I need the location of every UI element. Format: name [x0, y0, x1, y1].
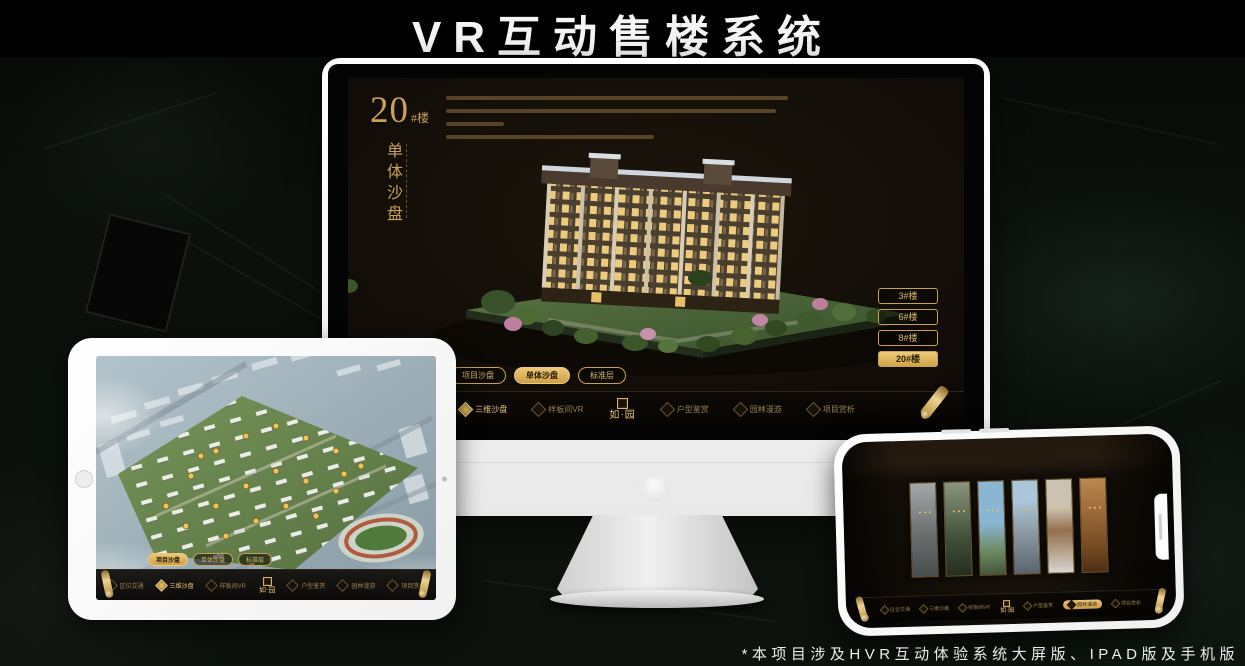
- block-number: 20: [370, 90, 409, 131]
- seal-icon: [263, 577, 272, 586]
- phone-notch: [1154, 494, 1169, 560]
- bottom-nav-bar: 区位交通 三维沙盘 样板间VR 如·园 户型鉴赏 园林漫游 项目赏析: [96, 569, 436, 600]
- diamond-icon: [286, 579, 299, 592]
- nav-item-project-gallery[interactable]: 项目赏析: [808, 404, 855, 415]
- scene-gallery: [909, 477, 1109, 577]
- nav-item-3d-sandbox[interactable]: 三维沙盘: [920, 605, 949, 613]
- scene-panel-autumn[interactable]: [1045, 478, 1075, 574]
- nav-item-label: 园林漫游: [1077, 601, 1097, 609]
- scene-panel-interior[interactable]: [1079, 477, 1109, 573]
- nav-item-model-room-vr[interactable]: 样板间VR: [959, 604, 990, 612]
- tab-standard-floor[interactable]: 标准层: [238, 553, 272, 566]
- nav-item-label: 样板间VR: [548, 404, 583, 415]
- monitor-stand-base: [550, 590, 764, 608]
- seal-icon: [1003, 599, 1010, 606]
- diamond-icon: [531, 401, 547, 417]
- nav-item-project-gallery[interactable]: 项目赏析: [1112, 599, 1141, 607]
- nav-item-label: 区位交通: [120, 581, 144, 590]
- section-title: 单体沙盘: [380, 142, 404, 226]
- panel-label-dots: [1059, 507, 1061, 509]
- scene-panel-exterior[interactable]: [977, 480, 1007, 576]
- tablet-device: 项目沙盘 单体沙盘 标准层 区位交通 三维沙盘 样板间VR 如·园 户型鉴赏 园…: [68, 338, 456, 620]
- floor-button-column: 3#楼 6#楼 8#楼 20#楼: [878, 288, 938, 367]
- nav-item-location[interactable]: 区位交通: [881, 606, 910, 614]
- diamond-icon: [659, 401, 675, 417]
- brand-logo: 如·园: [609, 398, 635, 421]
- brand-logo-text: 如·园: [1000, 607, 1014, 613]
- nav-item-label: 样板间VR: [968, 604, 990, 612]
- floor-button-6[interactable]: 6#楼: [878, 309, 938, 325]
- nav-item-garden-roam[interactable]: 园林漫游: [338, 581, 375, 590]
- diamond-icon: [958, 603, 968, 613]
- nav-item-model-room-vr[interactable]: 样板间VR: [207, 581, 246, 590]
- nav-item-3d-sandbox[interactable]: 三维沙盘: [157, 581, 194, 590]
- footnote-text: *本项目涉及HVR互动体验系统大屏版、IPAD版及手机版: [742, 643, 1239, 664]
- seal-icon: [617, 398, 628, 409]
- diamond-icon: [336, 579, 349, 592]
- panel-label-dots: [991, 509, 993, 511]
- description-text-lines: [446, 96, 788, 148]
- nav-item-label: 三维沙盘: [475, 404, 507, 415]
- view-tab-row: 项目沙盘 单体沙盘 标准层: [450, 367, 626, 384]
- brand-logo: 如·园: [1000, 599, 1014, 613]
- nav-item-label: 户型鉴赏: [677, 404, 709, 415]
- brand-logo-text: 如·园: [609, 411, 635, 421]
- floor-button-3[interactable]: 3#楼: [878, 288, 938, 304]
- nav-item-label: 户型鉴赏: [1033, 602, 1053, 610]
- scene-panel-courtyard[interactable]: [909, 482, 939, 578]
- camera-icon: [442, 477, 447, 482]
- nav-item-floorplan[interactable]: 户型鉴赏: [662, 404, 709, 415]
- volume-button[interactable]: [941, 429, 971, 434]
- diamond-icon: [155, 579, 168, 592]
- floor-button-20[interactable]: 20#楼: [878, 351, 938, 367]
- nav-item-label: 三维沙盘: [170, 581, 194, 590]
- view-tab-row: 项目沙盘 单体沙盘 标准层: [148, 553, 272, 566]
- diamond-icon: [805, 401, 821, 417]
- diamond-icon: [732, 401, 748, 417]
- nav-item-floorplan[interactable]: 户型鉴赏: [1024, 602, 1053, 610]
- tab-single-sandbox[interactable]: 单体沙盘: [514, 367, 570, 384]
- panel-label-dots: [1025, 508, 1027, 510]
- panel-label-dots: [1093, 506, 1095, 508]
- volume-button[interactable]: [979, 428, 1009, 433]
- nav-item-model-room-vr[interactable]: 样板间VR: [533, 404, 583, 415]
- monitor-chin-logo: [643, 476, 669, 502]
- nav-item-garden-roam[interactable]: 园林漫游: [1063, 599, 1102, 609]
- panel-label-dots: [923, 511, 925, 513]
- phone-app-screen: 区位交通 三维沙盘 样板间VR 如·园 户型鉴赏 园林漫游 项目赏析: [841, 433, 1176, 628]
- diamond-icon: [386, 579, 399, 592]
- description-line: [446, 135, 654, 139]
- description-line: [446, 109, 776, 113]
- tab-single-sandbox[interactable]: 单体沙盘: [193, 553, 233, 566]
- diamond-icon: [205, 579, 218, 592]
- block-number-suffix: #楼: [411, 111, 429, 125]
- tab-project-sandbox[interactable]: 项目沙盘: [148, 553, 188, 566]
- tablet-app-screen: 项目沙盘 单体沙盘 标准层 区位交通 三维沙盘 样板间VR 如·园 户型鉴赏 园…: [96, 356, 436, 600]
- diamond-icon: [458, 401, 474, 417]
- phone-device: 区位交通 三维沙盘 样板间VR 如·园 户型鉴赏 园林漫游 项目赏析: [833, 425, 1185, 637]
- nav-item-3d-sandbox[interactable]: 三维沙盘: [460, 404, 507, 415]
- poster-stage: VR互动售楼系统: [0, 0, 1245, 666]
- nav-item-label: 区位交通: [890, 606, 910, 614]
- nav-item-label: 项目赏析: [823, 404, 855, 415]
- scene-panel-garden[interactable]: [943, 481, 973, 577]
- floor-button-8[interactable]: 8#楼: [878, 330, 938, 346]
- poster-title: VR互动售楼系统: [0, 1, 1245, 65]
- vertical-divider: [406, 144, 407, 218]
- description-line: [446, 122, 504, 126]
- block-title: 20#楼: [370, 92, 429, 129]
- nav-item-garden-roam[interactable]: 园林漫游: [735, 404, 782, 415]
- speaker-icon: [1159, 514, 1163, 540]
- description-line: [446, 96, 788, 100]
- diamond-icon: [880, 605, 890, 615]
- scene-panel-building[interactable]: [1011, 479, 1041, 575]
- diamond-icon: [1111, 599, 1121, 609]
- home-button[interactable]: [75, 470, 93, 488]
- nav-item-floorplan[interactable]: 户型鉴赏: [288, 581, 325, 590]
- nav-item-label: 园林漫游: [750, 404, 782, 415]
- nav-item-label: 园林漫游: [351, 581, 375, 590]
- brand-logo: 如·园: [259, 577, 275, 594]
- nav-item-label: 项目赏析: [1121, 599, 1141, 607]
- panel-label-dots: [957, 510, 959, 512]
- tab-project-sandbox[interactable]: 项目沙盘: [450, 367, 506, 384]
- diamond-icon: [919, 604, 929, 614]
- diamond-icon: [1067, 600, 1077, 610]
- nav-item-label: 三维沙盘: [929, 605, 949, 613]
- brand-logo-text: 如·园: [259, 587, 275, 594]
- nav-item-label: 样板间VR: [220, 581, 246, 590]
- tab-standard-floor[interactable]: 标准层: [578, 367, 626, 384]
- diamond-icon: [1023, 601, 1033, 611]
- nav-item-label: 户型鉴赏: [301, 581, 325, 590]
